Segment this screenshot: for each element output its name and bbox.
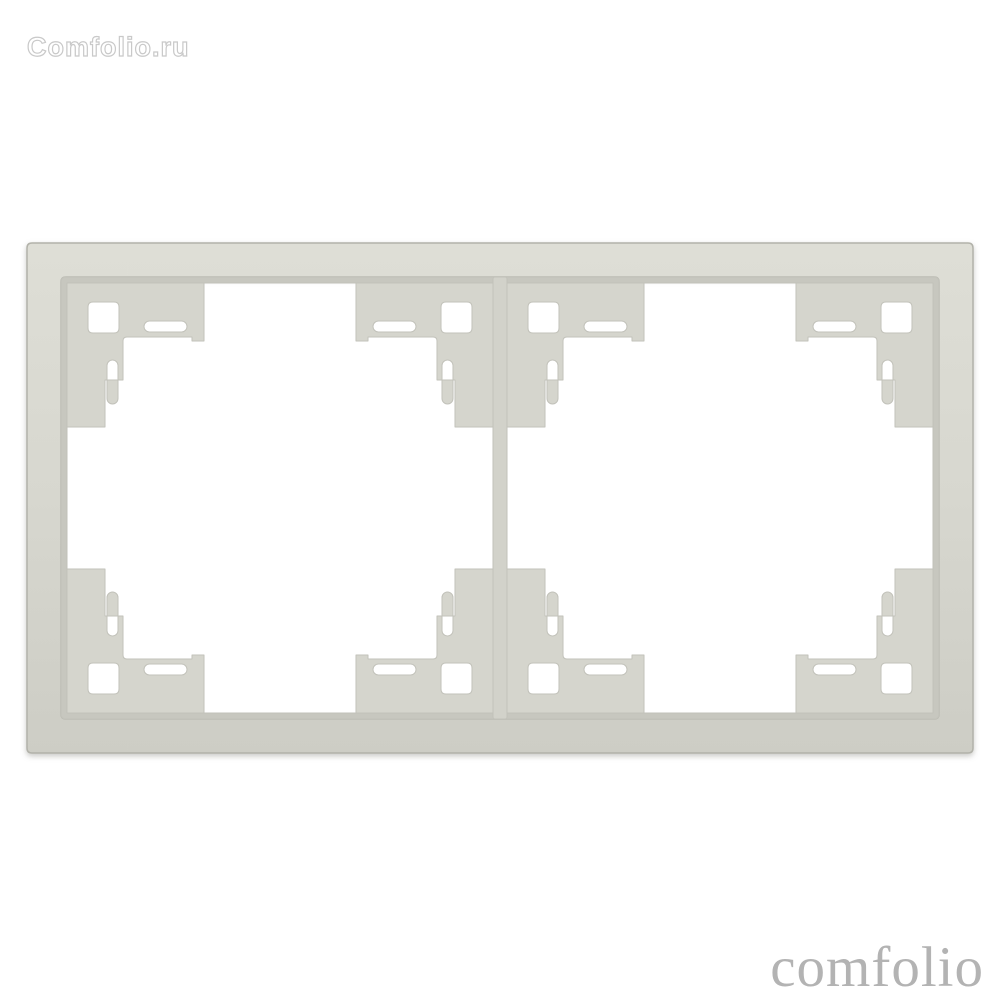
corner-tab-right-bottom-left: [507, 569, 644, 713]
corner-tab-right-top-right: [796, 283, 933, 427]
corner-tab-right-bottom-right: [796, 569, 933, 713]
product-photo: Comfolio.ru comfolio: [0, 0, 1000, 1000]
center-rib: [493, 277, 507, 719]
corner-tab-left-top-left: [67, 283, 204, 427]
corner-tab-right-top-left: [507, 283, 644, 427]
corner-tab-left-bottom-left: [67, 569, 204, 713]
frame-product-image: [0, 0, 1000, 1000]
corner-tab-left-top-right: [356, 283, 493, 427]
corner-tab-left-bottom-right: [356, 569, 493, 713]
brand-logo-text: comfolio: [770, 939, 984, 996]
